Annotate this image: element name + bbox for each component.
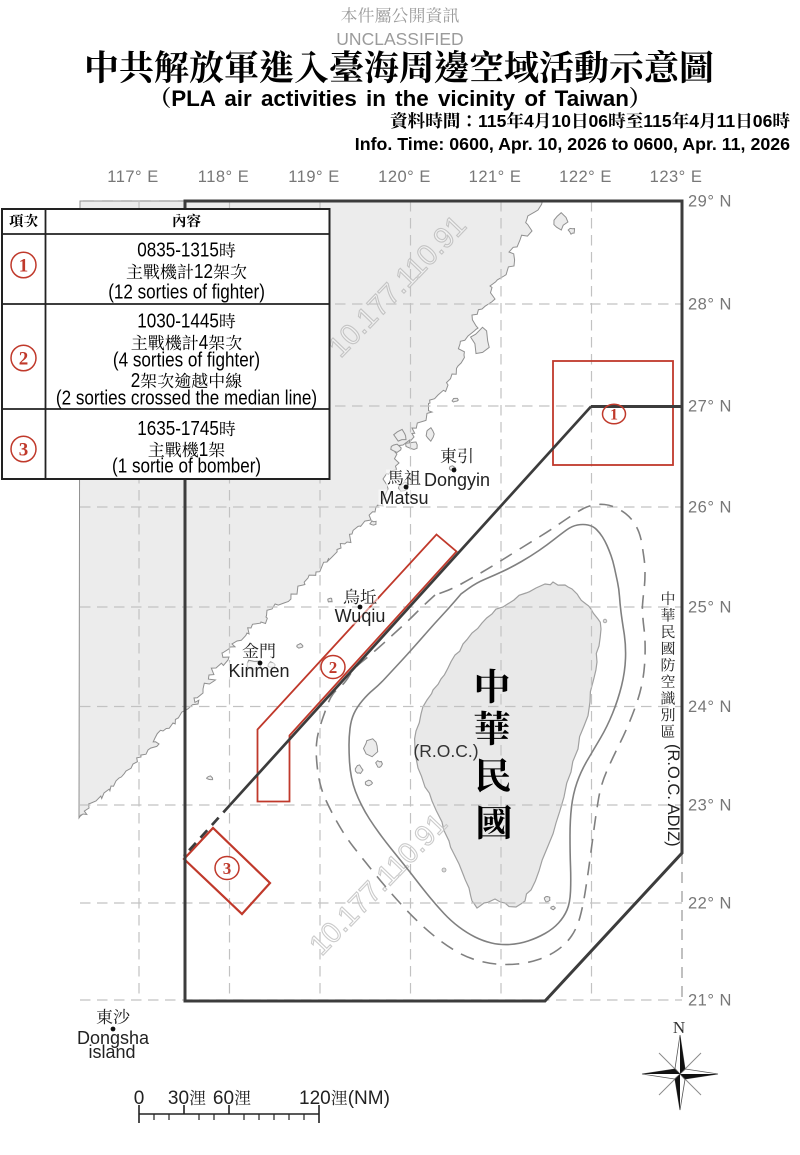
- svg-text:(R.O.C.): (R.O.C.): [413, 741, 478, 761]
- svg-text:06: 06: [589, 111, 609, 131]
- svg-text:4: 4: [689, 111, 699, 131]
- svg-text:21° N: 21° N: [688, 992, 732, 1010]
- svg-text:(4 sorties of fighter): (4 sorties of fighter): [113, 350, 260, 372]
- svg-text:10: 10: [551, 111, 571, 131]
- svg-text:22° N: 22° N: [688, 895, 732, 913]
- svg-text:123° E: 123° E: [650, 168, 703, 186]
- svg-text:(12 sorties of fighter): (12 sorties of fighter): [108, 282, 265, 304]
- svg-text:PLA air activities in the vici: PLA air activities in the vicinity of Ta…: [171, 86, 629, 111]
- svg-text:115: 115: [643, 111, 672, 131]
- svg-text:06: 06: [753, 111, 773, 131]
- svg-text:N: N: [673, 1018, 685, 1037]
- svg-text:11: 11: [717, 111, 736, 131]
- svg-text:Dongyin: Dongyin: [424, 470, 490, 490]
- svg-text:24° N: 24° N: [688, 698, 732, 716]
- svg-text:1635-1745: 1635-1745: [137, 418, 219, 440]
- svg-text:120: 120: [299, 1088, 331, 1109]
- svg-text:118° E: 118° E: [198, 168, 250, 186]
- svg-text:121° E: 121° E: [469, 168, 522, 186]
- svg-text:1030-1445: 1030-1445: [137, 310, 219, 332]
- svg-text:0835-1315: 0835-1315: [137, 240, 219, 262]
- svg-text:(R.O.C. ADIZ): (R.O.C. ADIZ): [664, 744, 682, 847]
- svg-text:3: 3: [223, 859, 232, 878]
- svg-text:1: 1: [19, 256, 29, 277]
- svg-text:29° N: 29° N: [688, 193, 732, 211]
- svg-text:Wuqiu: Wuqiu: [335, 606, 386, 626]
- svg-text:0: 0: [134, 1088, 145, 1109]
- svg-text:Kinmen: Kinmen: [228, 661, 289, 681]
- svg-text:26° N: 26° N: [688, 499, 732, 517]
- svg-text:10.177.110.91: 10.177.110.91: [304, 808, 454, 962]
- svg-text:2: 2: [329, 658, 338, 677]
- svg-text:23° N: 23° N: [688, 797, 732, 815]
- svg-text:3: 3: [19, 440, 29, 461]
- svg-text:120° E: 120° E: [378, 168, 431, 186]
- svg-text:Matsu: Matsu: [379, 488, 428, 508]
- svg-text:2: 2: [19, 349, 29, 370]
- svg-text:1: 1: [610, 407, 618, 424]
- svg-text:(1 sortie of bomber): (1 sortie of bomber): [112, 456, 261, 478]
- svg-text:Info. Time: 0600, Apr. 10, 202: Info. Time: 0600, Apr. 10, 2026 to 0600,…: [355, 134, 790, 154]
- svg-text:(NM): (NM): [348, 1088, 390, 1109]
- svg-text:119° E: 119° E: [288, 168, 340, 186]
- svg-text:122° E: 122° E: [559, 168, 612, 186]
- svg-text:12: 12: [194, 261, 213, 283]
- svg-text:island: island: [88, 1042, 135, 1062]
- svg-text:27° N: 27° N: [688, 398, 732, 416]
- svg-text:(2 sorties crossed the median: (2 sorties crossed the median line): [56, 388, 317, 410]
- svg-text:4: 4: [524, 111, 534, 131]
- svg-text:117° E: 117° E: [107, 168, 159, 186]
- svg-text:115: 115: [478, 111, 507, 131]
- svg-text:60: 60: [213, 1088, 234, 1109]
- svg-text:25° N: 25° N: [688, 599, 732, 617]
- svg-text:UNCLASSIFIED: UNCLASSIFIED: [336, 29, 463, 49]
- svg-text:30: 30: [168, 1088, 189, 1109]
- svg-text:28° N: 28° N: [688, 296, 732, 314]
